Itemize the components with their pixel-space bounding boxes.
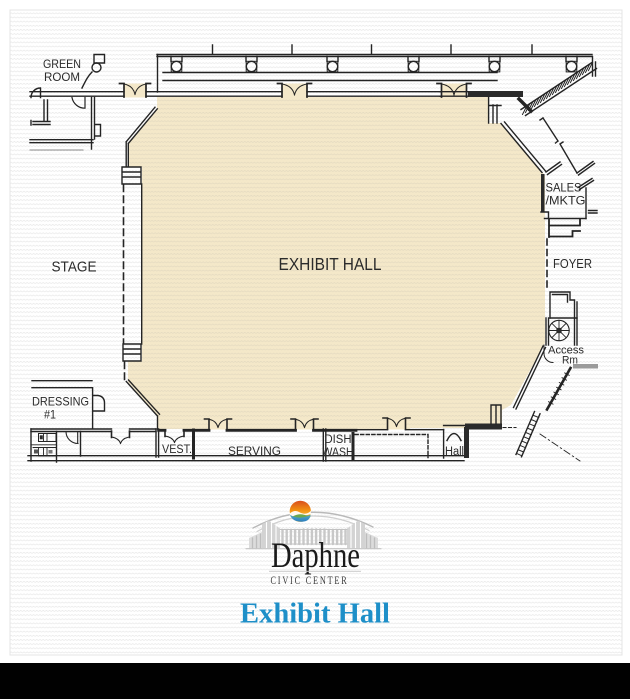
svg-text:WASH: WASH <box>323 447 354 459</box>
svg-text:Exhibit Hall: Exhibit Hall <box>240 598 390 630</box>
svg-text:GREEN: GREEN <box>43 57 81 71</box>
svg-text:EXHIBIT HALL: EXHIBIT HALL <box>279 254 382 274</box>
svg-text:DRESSING: DRESSING <box>32 395 89 409</box>
svg-text:Hall: Hall <box>445 446 464 458</box>
svg-text:SALES: SALES <box>546 181 582 195</box>
svg-text:ROOM: ROOM <box>44 70 80 84</box>
svg-text:/MKTG: /MKTG <box>546 194 586 208</box>
svg-text:Daphne: Daphne <box>271 535 360 575</box>
svg-text:FOYER: FOYER <box>553 256 592 271</box>
svg-text:Rm: Rm <box>562 355 578 367</box>
svg-text:#1: #1 <box>44 408 56 422</box>
svg-text:CIVIC CENTER: CIVIC CENTER <box>271 575 349 587</box>
svg-text:VEST.: VEST. <box>162 444 192 456</box>
svg-text:DISH: DISH <box>325 434 352 446</box>
svg-text:STAGE: STAGE <box>52 259 97 276</box>
svg-text:SERVING: SERVING <box>228 444 281 458</box>
